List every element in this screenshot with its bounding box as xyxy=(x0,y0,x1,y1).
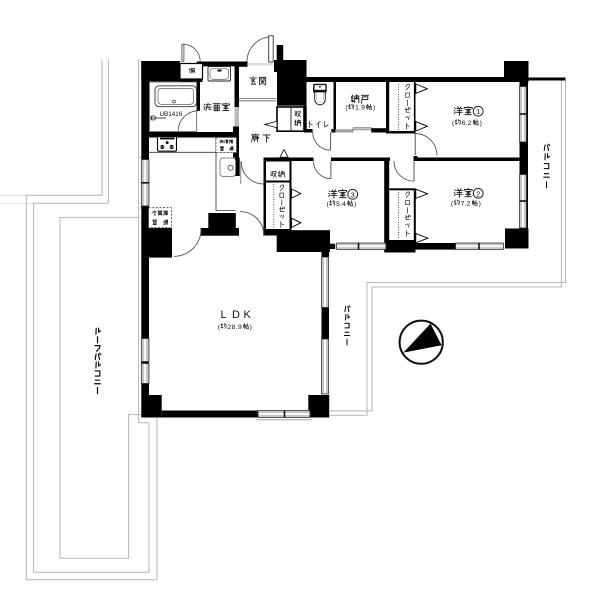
svg-text:): ) xyxy=(250,324,252,331)
svg-text:): ) xyxy=(373,105,375,112)
svg-text:L: L xyxy=(221,309,227,321)
svg-text:1: 1 xyxy=(476,107,480,116)
svg-text:7.2: 7.2 xyxy=(461,200,471,207)
svg-text:28.9: 28.9 xyxy=(227,324,242,331)
svg-text:2: 2 xyxy=(476,189,480,198)
svg-text:6.2: 6.2 xyxy=(462,120,472,127)
svg-text:): ) xyxy=(480,120,482,127)
svg-text:UB1416: UB1416 xyxy=(160,111,183,118)
svg-text:1.9: 1.9 xyxy=(355,105,365,112)
svg-text:5.4: 5.4 xyxy=(336,201,346,208)
svg-text:D: D xyxy=(232,309,240,321)
svg-text:3: 3 xyxy=(351,190,355,199)
svg-text:): ) xyxy=(479,200,481,207)
svg-text:): ) xyxy=(354,201,356,208)
svg-text:K: K xyxy=(244,309,252,321)
